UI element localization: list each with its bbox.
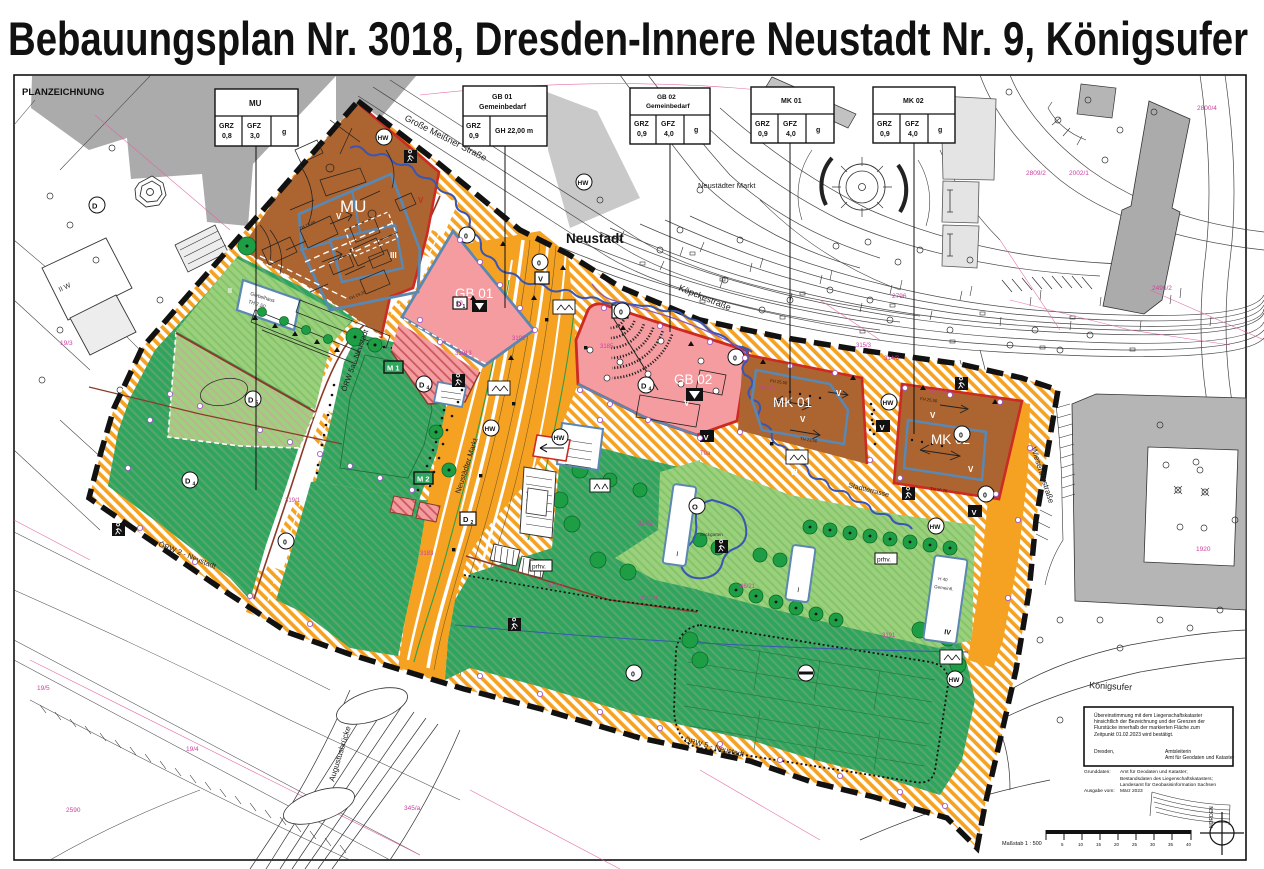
svg-text:V: V [930, 411, 936, 420]
svg-text:4: 4 [193, 482, 196, 488]
svg-text:20: 20 [1114, 842, 1120, 847]
svg-text:2496/2: 2496/2 [1152, 285, 1172, 292]
svg-text:31913: 31913 [455, 351, 472, 357]
svg-text:0: 0 [733, 356, 737, 363]
svg-text:Bebauungsplan Nr. 3018, Dresde: Bebauungsplan Nr. 3018, Dresden-Innere N… [8, 12, 1248, 65]
svg-text:3192: 3192 [512, 336, 526, 342]
svg-text:315/3: 315/3 [856, 343, 872, 349]
svg-text:D: D [248, 396, 254, 405]
svg-text:HW: HW [378, 135, 390, 142]
svg-text:D: D [92, 202, 98, 211]
svg-text:MK 02: MK 02 [903, 98, 924, 105]
svg-text:10: 10 [1078, 842, 1084, 847]
svg-text:März 2023: März 2023 [1120, 788, 1143, 794]
svg-text:GRZ: GRZ [755, 121, 771, 128]
svg-text:Amt für Geodaten und Kataster;: Amt für Geodaten und Kataster; [1120, 769, 1188, 775]
svg-text:Seckgarten: Seckgarten [700, 532, 723, 537]
svg-text:30: 30 [1150, 842, 1156, 847]
svg-text:III: III [390, 251, 397, 260]
svg-text:D: D [185, 477, 191, 486]
svg-text:2800/4: 2800/4 [1197, 105, 1217, 112]
svg-text:HW: HW [883, 400, 895, 407]
svg-text:O: O [692, 503, 698, 512]
svg-text:Dresden,: Dresden, [1094, 749, 1114, 755]
svg-text:4,0: 4,0 [908, 131, 918, 138]
svg-text:0,9: 0,9 [880, 131, 890, 138]
svg-text:T0a: T0a [700, 451, 711, 457]
svg-text:15: 15 [1096, 842, 1102, 847]
svg-text:4,0: 4,0 [664, 131, 674, 138]
svg-text:Ausgabe vom:: Ausgabe vom: [1084, 788, 1115, 794]
svg-text:GB 02: GB 02 [657, 94, 676, 101]
svg-text:319/5: 319/5 [760, 386, 776, 392]
svg-text:Übereinstimmung mit dem Liegen: Übereinstimmung mit dem Liegenschaftskat… [1094, 712, 1203, 719]
svg-text:M 1: M 1 [387, 364, 400, 373]
svg-text:V: V [336, 212, 342, 221]
svg-text:25: 25 [1132, 842, 1138, 847]
svg-text:GFZ: GFZ [905, 121, 920, 128]
svg-text:Gemeinbedarf: Gemeinbedarf [479, 104, 527, 111]
svg-text:V: V [836, 389, 842, 398]
svg-text:V: V [972, 508, 977, 517]
svg-text:II: II [228, 288, 232, 295]
svg-text:2: 2 [471, 520, 474, 526]
svg-text:g: g [694, 127, 698, 134]
svg-text:g: g [816, 127, 820, 134]
svg-text:g: g [938, 127, 942, 134]
svg-text:19/5: 19/5 [37, 685, 50, 692]
svg-text:GRZ: GRZ [466, 123, 482, 130]
svg-text:314/3: 314/3 [884, 356, 900, 362]
svg-text:Neustädter Markt: Neustädter Markt [698, 181, 756, 190]
svg-text:MK 01: MK 01 [773, 395, 812, 410]
svg-text:V: V [800, 415, 806, 424]
svg-text:IV: IV [944, 629, 952, 637]
svg-text:V: V [968, 465, 974, 474]
svg-text:4: 4 [649, 387, 652, 393]
svg-text:1: 1 [463, 304, 466, 310]
svg-text:3191/1: 3191/1 [640, 596, 659, 602]
svg-text:GB 02: GB 02 [674, 372, 712, 387]
svg-text:V: V [538, 275, 543, 284]
svg-text:1920: 1920 [1196, 546, 1211, 553]
svg-text:345/a: 345/a [404, 805, 421, 812]
svg-text:3185: 3185 [600, 344, 614, 350]
svg-text:MK 01: MK 01 [781, 98, 802, 105]
svg-text:HW: HW [930, 524, 942, 531]
svg-text:19/3: 19/3 [60, 340, 73, 347]
svg-text:Landesamt für Geobasisinformat: Landesamt für Geobasisinformation Sachse… [1120, 782, 1216, 788]
svg-text:Grunddaten:: Grunddaten: [1084, 769, 1111, 775]
svg-text:MU: MU [340, 197, 366, 216]
svg-text:V: V [704, 433, 709, 442]
svg-text:Amt für Geodaten und Kataster: Amt für Geodaten und Kataster [1165, 755, 1235, 761]
svg-text:0,8: 0,8 [222, 133, 232, 140]
svg-text:Neustadt: Neustadt [566, 231, 624, 246]
svg-text:GB 01: GB 01 [492, 94, 512, 101]
svg-text:M 2: M 2 [417, 475, 430, 484]
svg-text:40: 40 [1186, 842, 1192, 847]
svg-text:3,0: 3,0 [250, 133, 260, 140]
svg-text:V: V [880, 423, 885, 432]
svg-text:D: D [641, 382, 647, 391]
svg-text:GH 22,00 m: GH 22,00 m [495, 128, 533, 135]
svg-text:HW: HW [554, 435, 566, 442]
svg-text:31/02: 31/02 [638, 521, 654, 527]
svg-text:Flurstücke innerhalb der marki: Flurstücke innerhalb der markierten Fläc… [1094, 725, 1200, 731]
svg-text:0,9: 0,9 [637, 131, 647, 138]
svg-text:0: 0 [983, 493, 987, 500]
svg-text:III: III [566, 425, 572, 432]
svg-text:3183: 3183 [420, 551, 434, 557]
svg-text:D: D [419, 381, 425, 390]
svg-text:Maßstab 1 : 500: Maßstab 1 : 500 [1002, 841, 1042, 847]
svg-text:HW: HW [949, 677, 961, 684]
svg-text:31919: 31919 [930, 390, 947, 396]
svg-text:0,9: 0,9 [469, 133, 479, 140]
svg-text:D: D [463, 515, 469, 524]
svg-text:GRZ: GRZ [219, 123, 235, 130]
svg-text:319/1: 319/1 [285, 498, 301, 504]
svg-text:0: 0 [959, 433, 963, 440]
svg-text:HW: HW [485, 426, 497, 433]
svg-text:GRZ: GRZ [877, 121, 893, 128]
svg-text:PLANZEICHNUNG: PLANZEICHNUNG [22, 87, 104, 98]
svg-text:Bestandsdaten des Liegenschaft: Bestandsdaten des Liegenschaftskatasters… [1120, 776, 1213, 782]
svg-text:0: 0 [464, 234, 468, 241]
svg-text:46/21: 46/21 [740, 584, 756, 590]
svg-text:0,9: 0,9 [758, 131, 768, 138]
svg-text:4,0: 4,0 [786, 131, 796, 138]
svg-text:4: 4 [427, 386, 430, 392]
svg-text:2590: 2590 [66, 807, 81, 814]
svg-text:19: 19 [456, 301, 463, 307]
svg-text:19/4: 19/4 [186, 746, 199, 753]
svg-text:HW: HW [578, 180, 590, 187]
svg-text:31911: 31911 [548, 584, 565, 590]
svg-text:GFZ: GFZ [783, 121, 798, 128]
svg-text:0: 0 [631, 672, 635, 679]
svg-text:GRZ: GRZ [634, 121, 650, 128]
svg-text:g: g [282, 129, 286, 136]
svg-text:GFZ: GFZ [661, 121, 676, 128]
svg-text:NORDEN: NORDEN [1209, 806, 1215, 828]
svg-text:Zeitpunkt 01.02.2023 wird: Zeitpunkt 01.02.2023 wird bestätigt. [1094, 732, 1173, 738]
svg-text:35: 35 [1168, 842, 1174, 847]
svg-text:prhv.: prhv. [877, 557, 891, 564]
svg-text:2002/1: 2002/1 [1069, 170, 1089, 177]
svg-text:0: 0 [619, 310, 623, 317]
svg-text:3191: 3191 [882, 633, 896, 639]
svg-text:V: V [418, 196, 424, 205]
svg-text:0: 0 [283, 540, 287, 547]
svg-text:0: 0 [537, 261, 541, 268]
svg-text:MU: MU [249, 99, 262, 108]
svg-text:Gemeinbedarf: Gemeinbedarf [646, 103, 691, 110]
svg-text:2796: 2796 [892, 293, 907, 300]
svg-text:prhv.: prhv. [532, 564, 546, 571]
svg-text:GFZ: GFZ [247, 123, 262, 130]
svg-text:VI: VI [790, 468, 798, 477]
svg-text:2809/2: 2809/2 [1026, 170, 1046, 177]
